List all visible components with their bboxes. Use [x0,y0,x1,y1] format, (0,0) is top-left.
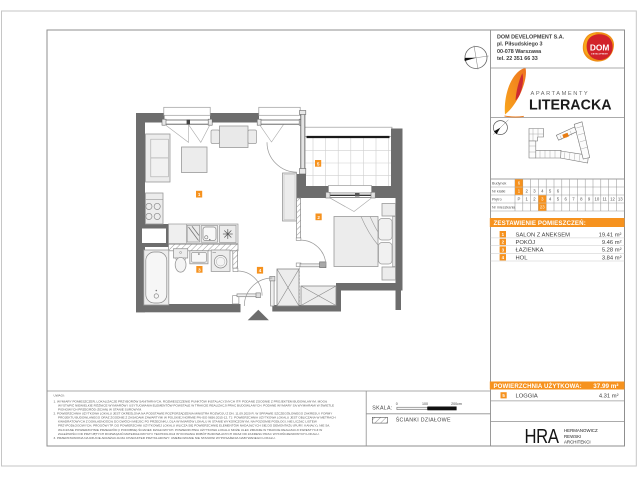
svg-text:4: 4 [259,268,262,273]
svg-text:P: P [517,197,520,202]
svg-text:4.31 m²: 4.31 m² [599,394,619,400]
svg-text:APARTAMENTY: APARTAMENTY [531,91,590,97]
svg-text:3: 3 [198,267,201,272]
svg-text:ARCHITEKCI: ARCHITEKCI [564,439,591,444]
svg-text:DEVELOPMENT: DEVELOPMENT [591,54,608,56]
svg-text:DOM DEVELOPMENT S.A.: DOM DEVELOPMENT S.A. [497,35,565,41]
svg-text:0: 0 [396,402,398,406]
svg-text:ŚCIANKI DZIAŁOWE: ŚCIANKI DZIAŁOWE [396,416,451,424]
svg-text:100: 100 [422,402,428,406]
svg-text:10: 10 [595,197,600,202]
svg-text:Nr mieszkania: Nr mieszkania [492,205,516,209]
svg-text:200cm: 200cm [451,402,462,406]
svg-text:2: 2 [317,215,320,220]
svg-text:LITERACKA: LITERACKA [529,97,612,113]
svg-text:12: 12 [610,197,615,202]
svg-text:HRA: HRA [525,425,560,448]
svg-text:5.28 m²: 5.28 m² [602,248,622,254]
svg-text:UWAGI:: UWAGI: [54,394,65,398]
svg-text:11: 11 [602,197,607,202]
svg-text:Budynek: Budynek [492,181,507,185]
svg-text:LOGGIA: LOGGIA [516,394,538,400]
svg-text:DOM: DOM [590,43,610,53]
svg-text:37.99 m²: 37.99 m² [593,383,618,390]
svg-text:Nr klatki: Nr klatki [492,189,505,193]
svg-text:POWIERZCHNIA UŻYTKOWA:: POWIERZCHNIA UŻYTKOWA: [494,383,582,390]
svg-text:SKALA:: SKALA: [372,405,392,411]
svg-text:SALON Z ANEKSEM: SALON Z ANEKSEM [516,232,571,238]
svg-text:ZESTAWIENIE POMIESZCZEŃ:: ZESTAWIENIE POMIESZCZEŃ: [494,219,586,227]
svg-text:13: 13 [618,197,623,202]
svg-text:POKÓJ: POKÓJ [516,239,536,246]
svg-text:tel. 22 351 66 33: tel. 22 351 66 33 [497,56,538,62]
svg-text:9.46 m²: 9.46 m² [602,240,622,246]
svg-text:Piętro: Piętro [492,197,502,201]
svg-text:HERMANOWICZ: HERMANOWICZ [564,428,598,433]
svg-text:19.41 m²: 19.41 m² [599,232,622,238]
svg-text:5: 5 [317,161,320,166]
svg-text:1: 1 [198,192,201,197]
svg-text:3. PRZEDSTAWIONA NA RZUCIE AR: 3. PRZEDSTAWIONA NA RZUCIE ARANŻACJA MA … [54,435,276,440]
svg-text:ŁAZIENKA: ŁAZIENKA [516,248,544,254]
svg-text:23: 23 [540,205,545,210]
svg-text:pl. Piłsudskiego 3: pl. Piłsudskiego 3 [497,42,543,48]
svg-text:00-078 Warszawa: 00-078 Warszawa [497,49,542,55]
svg-text:3.84 m²: 3.84 m² [602,255,622,261]
svg-text:HOL: HOL [516,255,529,261]
svg-text:REWSKI: REWSKI [564,434,581,439]
